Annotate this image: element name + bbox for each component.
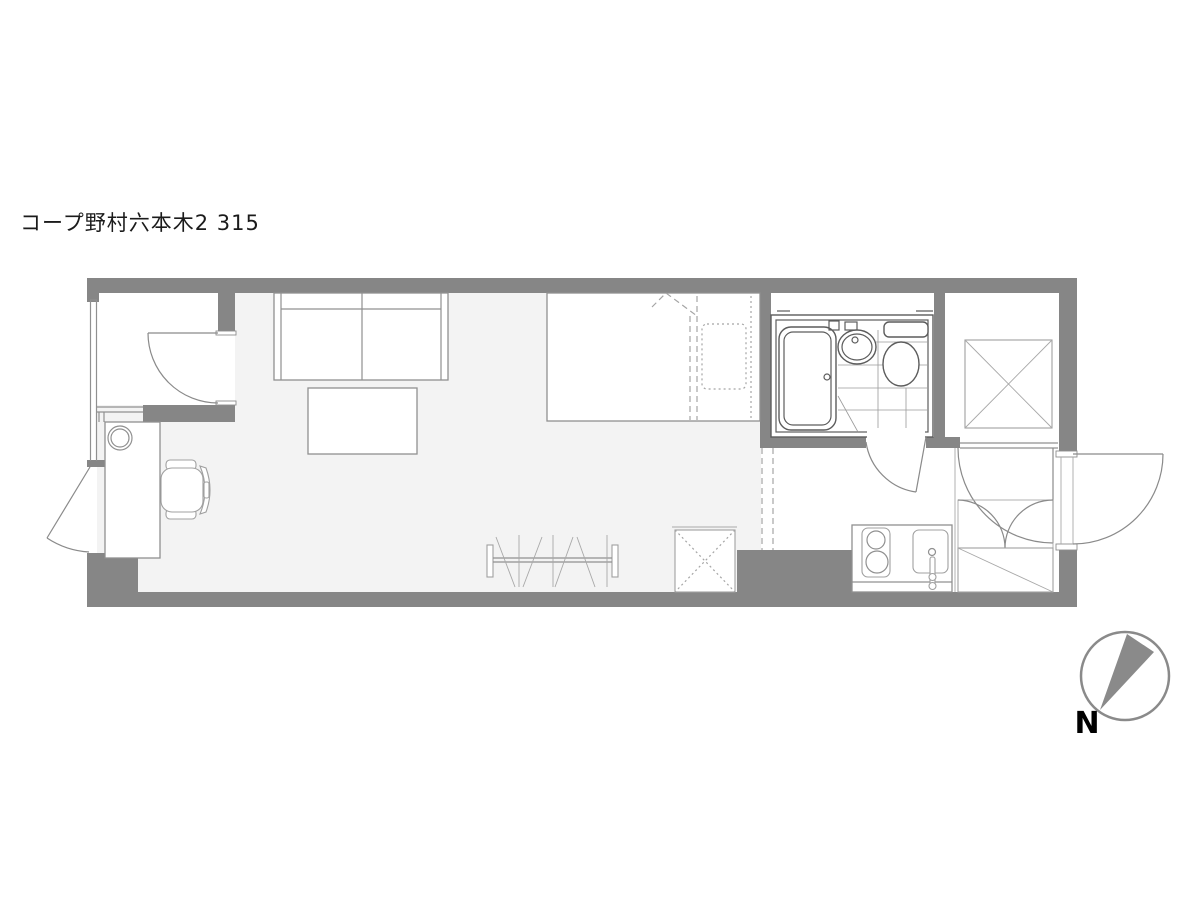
closet-x-box [965,340,1052,428]
faucet-detail [929,574,936,581]
low-table [308,388,417,454]
entrance-door [1073,454,1163,544]
wall-right-lower [1059,550,1077,607]
office-chair [161,460,210,519]
wall-closet-bottom-bar [143,405,235,422]
wall-bottom [87,592,1077,607]
wall-closetroom-left [934,292,945,448]
north-compass: N [1074,632,1169,741]
bathtub [779,327,836,430]
wall-bath-bottom-left [760,437,866,448]
toilet-bowl [883,342,919,386]
wall-top [87,278,1077,293]
wall-bath-left [760,293,771,448]
floor-plan-canvas: コープ野村六本木2 315 [0,0,1200,900]
jamb [1056,544,1077,550]
jamb [216,331,236,335]
storage-box-dotted-x [672,527,737,592]
jamb [216,401,236,405]
unit-bath [771,311,933,439]
genkan-area [958,340,1058,592]
wall-bottom-left-block [87,553,138,607]
balcony-door [47,467,90,552]
north-label: N [1074,706,1099,741]
bed [547,293,760,421]
wall-left-corner [87,278,99,302]
walkin-closet-door [148,333,218,403]
desk [105,422,160,558]
wall-closet-stub [218,293,235,332]
gas-stove [862,528,890,577]
shoe-cabinet [958,548,1053,592]
bath-door-opening [867,428,925,439]
sofa [274,293,448,380]
closet-door [958,448,1053,543]
washbasin [838,330,876,364]
chair-knob [204,482,209,498]
compass-needle [1100,634,1154,710]
kitchen-counter [852,525,952,592]
wall-mid-bottom-block [737,550,853,592]
bathroom-door [866,437,926,492]
wall-right-upper [1059,293,1077,452]
left-window-wall [90,300,97,461]
double-door-cabinet [958,500,1053,548]
toilet-tank [884,322,928,337]
faucet-detail [929,583,936,590]
wall-left-stub [87,460,105,467]
page-title: コープ野村六本木2 315 [20,211,260,235]
chair-seat [161,468,203,512]
